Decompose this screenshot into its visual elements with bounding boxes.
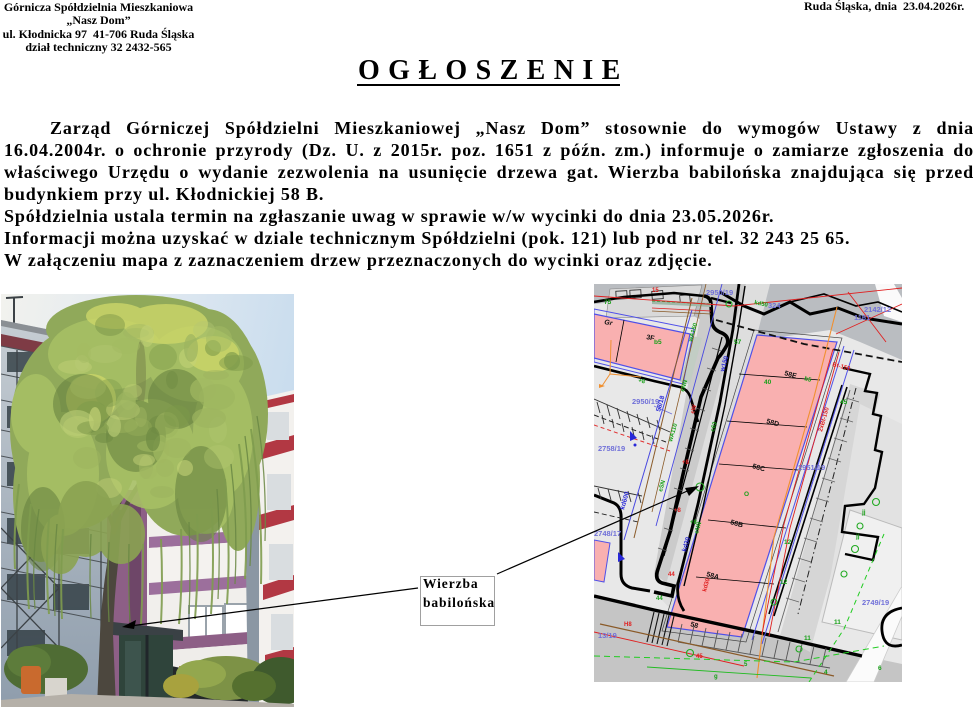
svg-text:g: g: [714, 674, 718, 680]
svg-text:44: 44: [668, 572, 675, 578]
svg-text:57: 57: [734, 339, 742, 346]
svg-text:15: 15: [652, 288, 659, 294]
svg-text:12: 12: [780, 579, 788, 586]
svg-text:44: 44: [656, 596, 663, 602]
svg-text:+8: +8: [682, 460, 690, 466]
svg-text:2749/19: 2749/19: [862, 598, 889, 607]
svg-text:2758/19: 2758/19: [598, 444, 625, 453]
svg-text:6: 6: [878, 665, 882, 672]
svg-text:b5: b5: [654, 339, 662, 346]
svg-text:45: 45: [696, 654, 703, 660]
svg-text:45: 45: [840, 399, 848, 406]
svg-text:13/19: 13/19: [598, 631, 617, 640]
svg-text:jj: jj: [855, 533, 860, 540]
svg-text:2951/19: 2951/19: [798, 463, 825, 472]
svg-text:2950/19: 2950/19: [706, 288, 733, 297]
svg-text:324: 324: [768, 301, 781, 310]
svg-text:11: 11: [804, 635, 811, 642]
svg-text:11: 11: [834, 619, 841, 626]
svg-text:jj: jj: [861, 509, 866, 516]
svg-text:75: 75: [604, 299, 612, 306]
svg-text:H8: H8: [624, 622, 632, 628]
svg-text:1161: 1161: [854, 313, 870, 322]
svg-text:O: O: [744, 491, 749, 498]
svg-text:+8: +8: [690, 520, 698, 526]
svg-text:2950/19: 2950/19: [632, 397, 659, 406]
svg-text:40: 40: [764, 379, 772, 386]
svg-text:2748/17: 2748/17: [594, 529, 621, 538]
svg-text:4: 4: [824, 669, 828, 676]
svg-text:+8: +8: [674, 508, 682, 514]
svg-text:12: 12: [784, 539, 792, 546]
